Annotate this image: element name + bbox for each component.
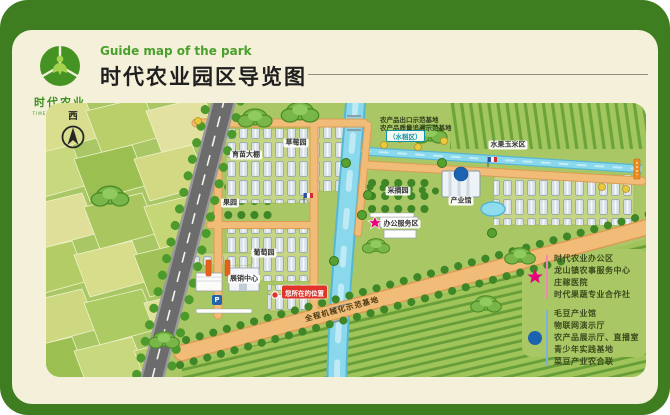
- title-divider: [308, 74, 648, 75]
- poster-frame: 时代农业 TIME AGRICULTURE Guide map of the p…: [0, 0, 670, 415]
- subtitle-en: Guide map of the park: [100, 44, 307, 58]
- page-title: 时代农业园区导览图: [100, 61, 307, 91]
- blue-dot-marker: [454, 167, 468, 181]
- legend-star-icon: [524, 268, 546, 286]
- header-titles: Guide map of the park 时代农业园区导览图: [100, 44, 307, 91]
- legend-dot-divider: [546, 310, 548, 366]
- map-label-corn: 水果玉米区: [489, 141, 528, 150]
- legend-item: 物联网演示厅: [554, 320, 639, 332]
- legend-dot-icon: [524, 331, 546, 345]
- map-label-office: 办公服务区: [382, 220, 421, 229]
- legend-item: 菜豆产业农合联: [554, 356, 639, 368]
- map-canvas: 西 草莓园 育苗大棚 果园 葡萄园 展销中心 水果玉米区 产业馆 办公服务区 采…: [46, 103, 646, 377]
- you-are-here-dot: [272, 292, 278, 298]
- map-label-hall: 产业馆: [449, 197, 474, 206]
- legend-item: 毛豆产业馆: [554, 308, 639, 320]
- legend-dot-group: 毛豆产业馆 物联网演示厅 农产品展示厅、直播室 青少年实践基地 菜豆产业农合联: [524, 308, 646, 368]
- compass-west-label: 西: [68, 108, 78, 122]
- legend-star-divider: [546, 255, 548, 299]
- legend-star-group: 时代农业办公区 龙山镇农事服务中心 庄稼医院 时代果蔬专业合作社: [524, 253, 646, 301]
- fence: [196, 309, 252, 313]
- pond: [481, 202, 505, 216]
- legend-dot-list: 毛豆产业馆 物联网演示厅 农产品展示厅、直播室 青少年实践基地 菜豆产业农合联: [554, 308, 639, 368]
- map-label-picking: 采摘园: [386, 187, 411, 196]
- legend-item: 青少年实践基地: [554, 344, 639, 356]
- brand-logo-icon: [37, 43, 83, 89]
- legend-item: 时代果蔬专业合作社: [554, 289, 631, 301]
- legend-item: 庄稼医院: [554, 277, 631, 289]
- crop-field-topright: [450, 103, 646, 149]
- map-label-rice: （水稻区）: [386, 130, 425, 142]
- legend-item: 时代农业办公区: [554, 253, 631, 265]
- map-label-nursery: 育苗大棚: [230, 151, 262, 160]
- banner-sign: [206, 260, 211, 276]
- poster-card: 时代农业 TIME AGRICULTURE Guide map of the p…: [12, 30, 658, 404]
- legend-item: 龙山镇农事服务中心: [554, 265, 631, 277]
- map-legend: 时代农业办公区 龙山镇农事服务中心 庄稼医院 时代果蔬专业合作社 毛豆产业馆 物…: [524, 253, 646, 375]
- legend-item: 农产品展示厅、直播室: [554, 332, 639, 344]
- map-label-exhibition: 展销中心: [228, 275, 260, 284]
- parking-icon: P: [212, 295, 222, 305]
- you-are-here-badge: 您所在的位置: [282, 286, 327, 299]
- map-label-strawberry: 草莓园: [284, 139, 309, 148]
- map-label-grape: 葡萄园: [252, 249, 277, 258]
- legend-star-list: 时代农业办公区 龙山镇农事服务中心 庄稼医院 时代果蔬专业合作社: [554, 253, 631, 301]
- signpost: [634, 159, 640, 179]
- fence: [370, 213, 414, 217]
- map-label-orchard: 果园: [221, 199, 239, 208]
